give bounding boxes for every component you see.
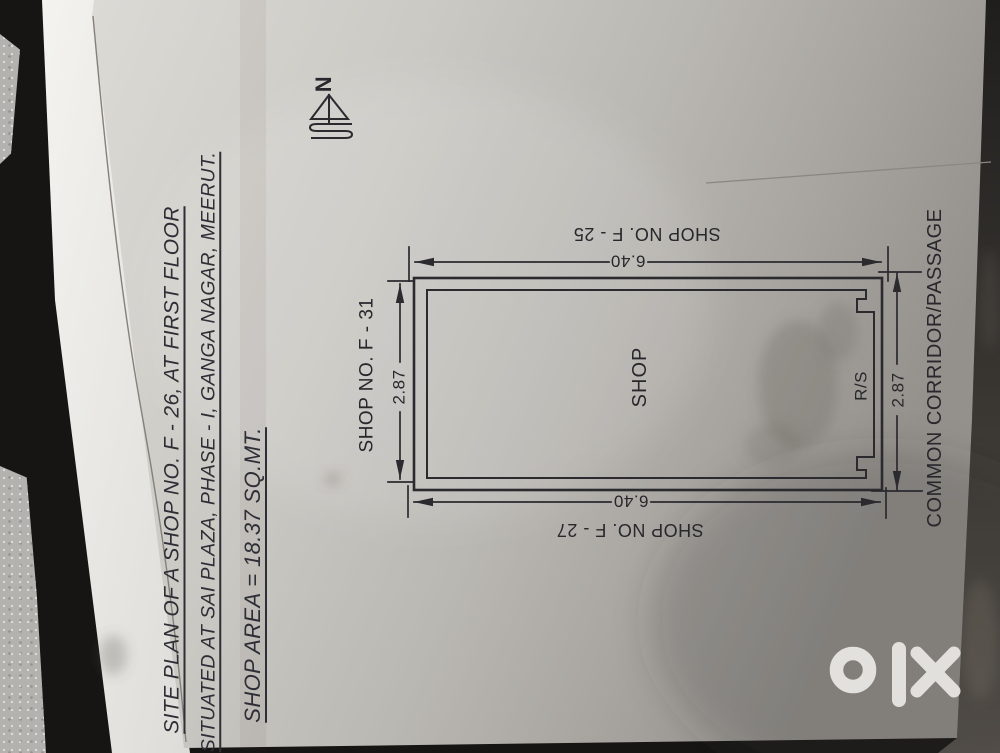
dim-length-top: 6.40 [610,253,645,270]
paper-highlight [150,80,710,520]
neighbor-shop-f31-label: SHOP NO. F - 31 [358,298,377,453]
north-label: N [313,76,335,92]
title-line-3: SHOP AREA = 18.37 SQ.MT. [242,427,264,723]
corridor-label: COMMON CORRIDOR/PASSAGE [925,209,945,528]
surface-texture-highlight [980,250,1000,350]
dim-width-right: 2.87 [890,372,907,407]
room-label: SHOP [630,347,650,408]
dim-length-bottom: 6.40 [613,493,648,510]
title-line-2: SITUATED AT SAI PLAZA, PHASE - I, GANGA … [199,152,219,753]
scene-graphics [0,0,1000,753]
title-line-1: SITE PLAN OF A SHOP NO. F - 26, AT FIRST… [162,206,183,734]
neighbor-shop-f25-label: SHOP NO. F - 25 [573,225,720,243]
neighbor-shop-f27-label: SHOP NO. F - 27 [556,521,703,539]
rolling-shutter-label: R/S [853,371,870,401]
photo-of-site-plan-document: SITE PLAN OF A SHOP NO. F - 26, AT FIRST… [0,0,1000,753]
dim-width-left: 2.87 [391,369,408,404]
